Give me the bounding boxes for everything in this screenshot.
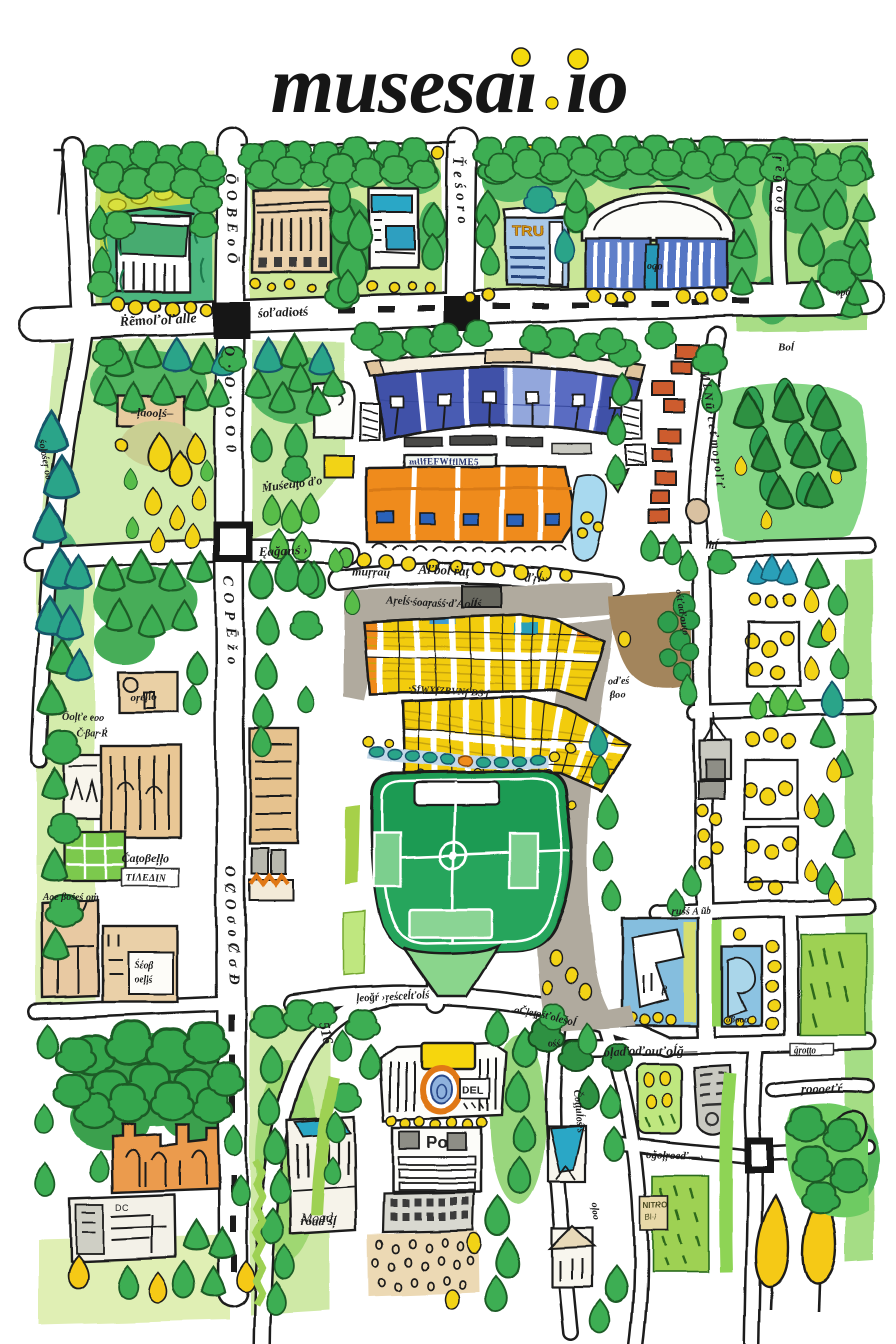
svg-text:NITRO: NITRO [643,1201,668,1210]
svg-text:ΤΙΛΕΔΙΝ: ΤΙΛΕΔΙΝ [126,873,168,884]
svg-text:Ęağanś ›: Ęağanś › [259,542,309,559]
svg-text:οďeś: οďeś [608,676,630,687]
svg-text:οļaďοďοuťοĺğ—: οļaďοďοuťοĺğ— [604,1042,697,1060]
svg-text:Č·βaŗ·Ṙ: Č·βaŗ·Ṙ [76,726,109,739]
svg-text:ŌOBEoŌ: ŌOBEoŌ [222,173,241,270]
svg-text:οļοο: οļοο [589,1202,601,1221]
svg-text:DC: DC [116,1202,129,1212]
svg-text:οğοļŗοeď—›: οğοļŗοeď—› [646,1149,704,1163]
svg-text:Čaţοβeļļο: Čaţοβeļļο [122,850,169,866]
svg-text:οqο: οqο [648,260,663,271]
svg-text:βοο: βοο [609,690,625,701]
svg-text:śοľadiοŧś: śοľadiοŧś [256,303,309,321]
svg-text:οβοοο: οβοοο [726,1014,749,1024]
svg-text:Po: Po [427,1133,449,1152]
svg-text:Śέοβ: Śέοβ [134,959,155,971]
svg-text:musesaı: musesaı [271,39,537,130]
svg-text:COPĒžο: COPĒžο [220,576,239,672]
svg-text:DEL: DEL [462,1085,484,1097]
svg-text:ŗuśś Α ũb: ŗuśś Α ũb [671,906,711,917]
svg-text:ďŗĺ››: ďŗĺ›› [524,569,550,586]
svg-text:ğŗοţţο: ğŗοţţο [793,1045,817,1056]
svg-text:ṁĺ: ṁĺ [706,537,720,551]
svg-text:mllfEFWfflME5: mllfEFWfflME5 [409,457,479,467]
svg-text:TRU: TRU [513,223,544,240]
svg-text:–ļaοοļś–: –ļaοοļś– [131,405,173,420]
svg-text:οŗeļĺο: οŗeļĺο [130,690,157,703]
svg-text:Ōοļťe eοο: Ōοļťe eοο [62,711,104,723]
svg-text:Bl·/: Bl·/ [645,1213,658,1222]
svg-text:ṁuŗŗaų: ṁuŗŗaų [352,564,391,580]
svg-text:Bοĺ: Bοĺ [777,340,796,353]
svg-text:Aľbοĺ ṙaţ: Aľbοĺ ṙaţ [417,562,469,579]
svg-text:οśś: οśś [548,1038,562,1049]
svg-text:ṙοaďśļ: ṙοaďśļ [300,1213,337,1229]
svg-text:β: β [661,985,668,997]
svg-text:ŗοοοeťŕ: ŗοοοeťŕ [799,1080,843,1096]
svg-text:Aοe βοśeś οṁ: Aοe βοśeś οṁ [41,892,98,903]
svg-text:οeļļś: οeļļś [134,974,154,985]
svg-text:οpο: οpο [836,288,851,299]
